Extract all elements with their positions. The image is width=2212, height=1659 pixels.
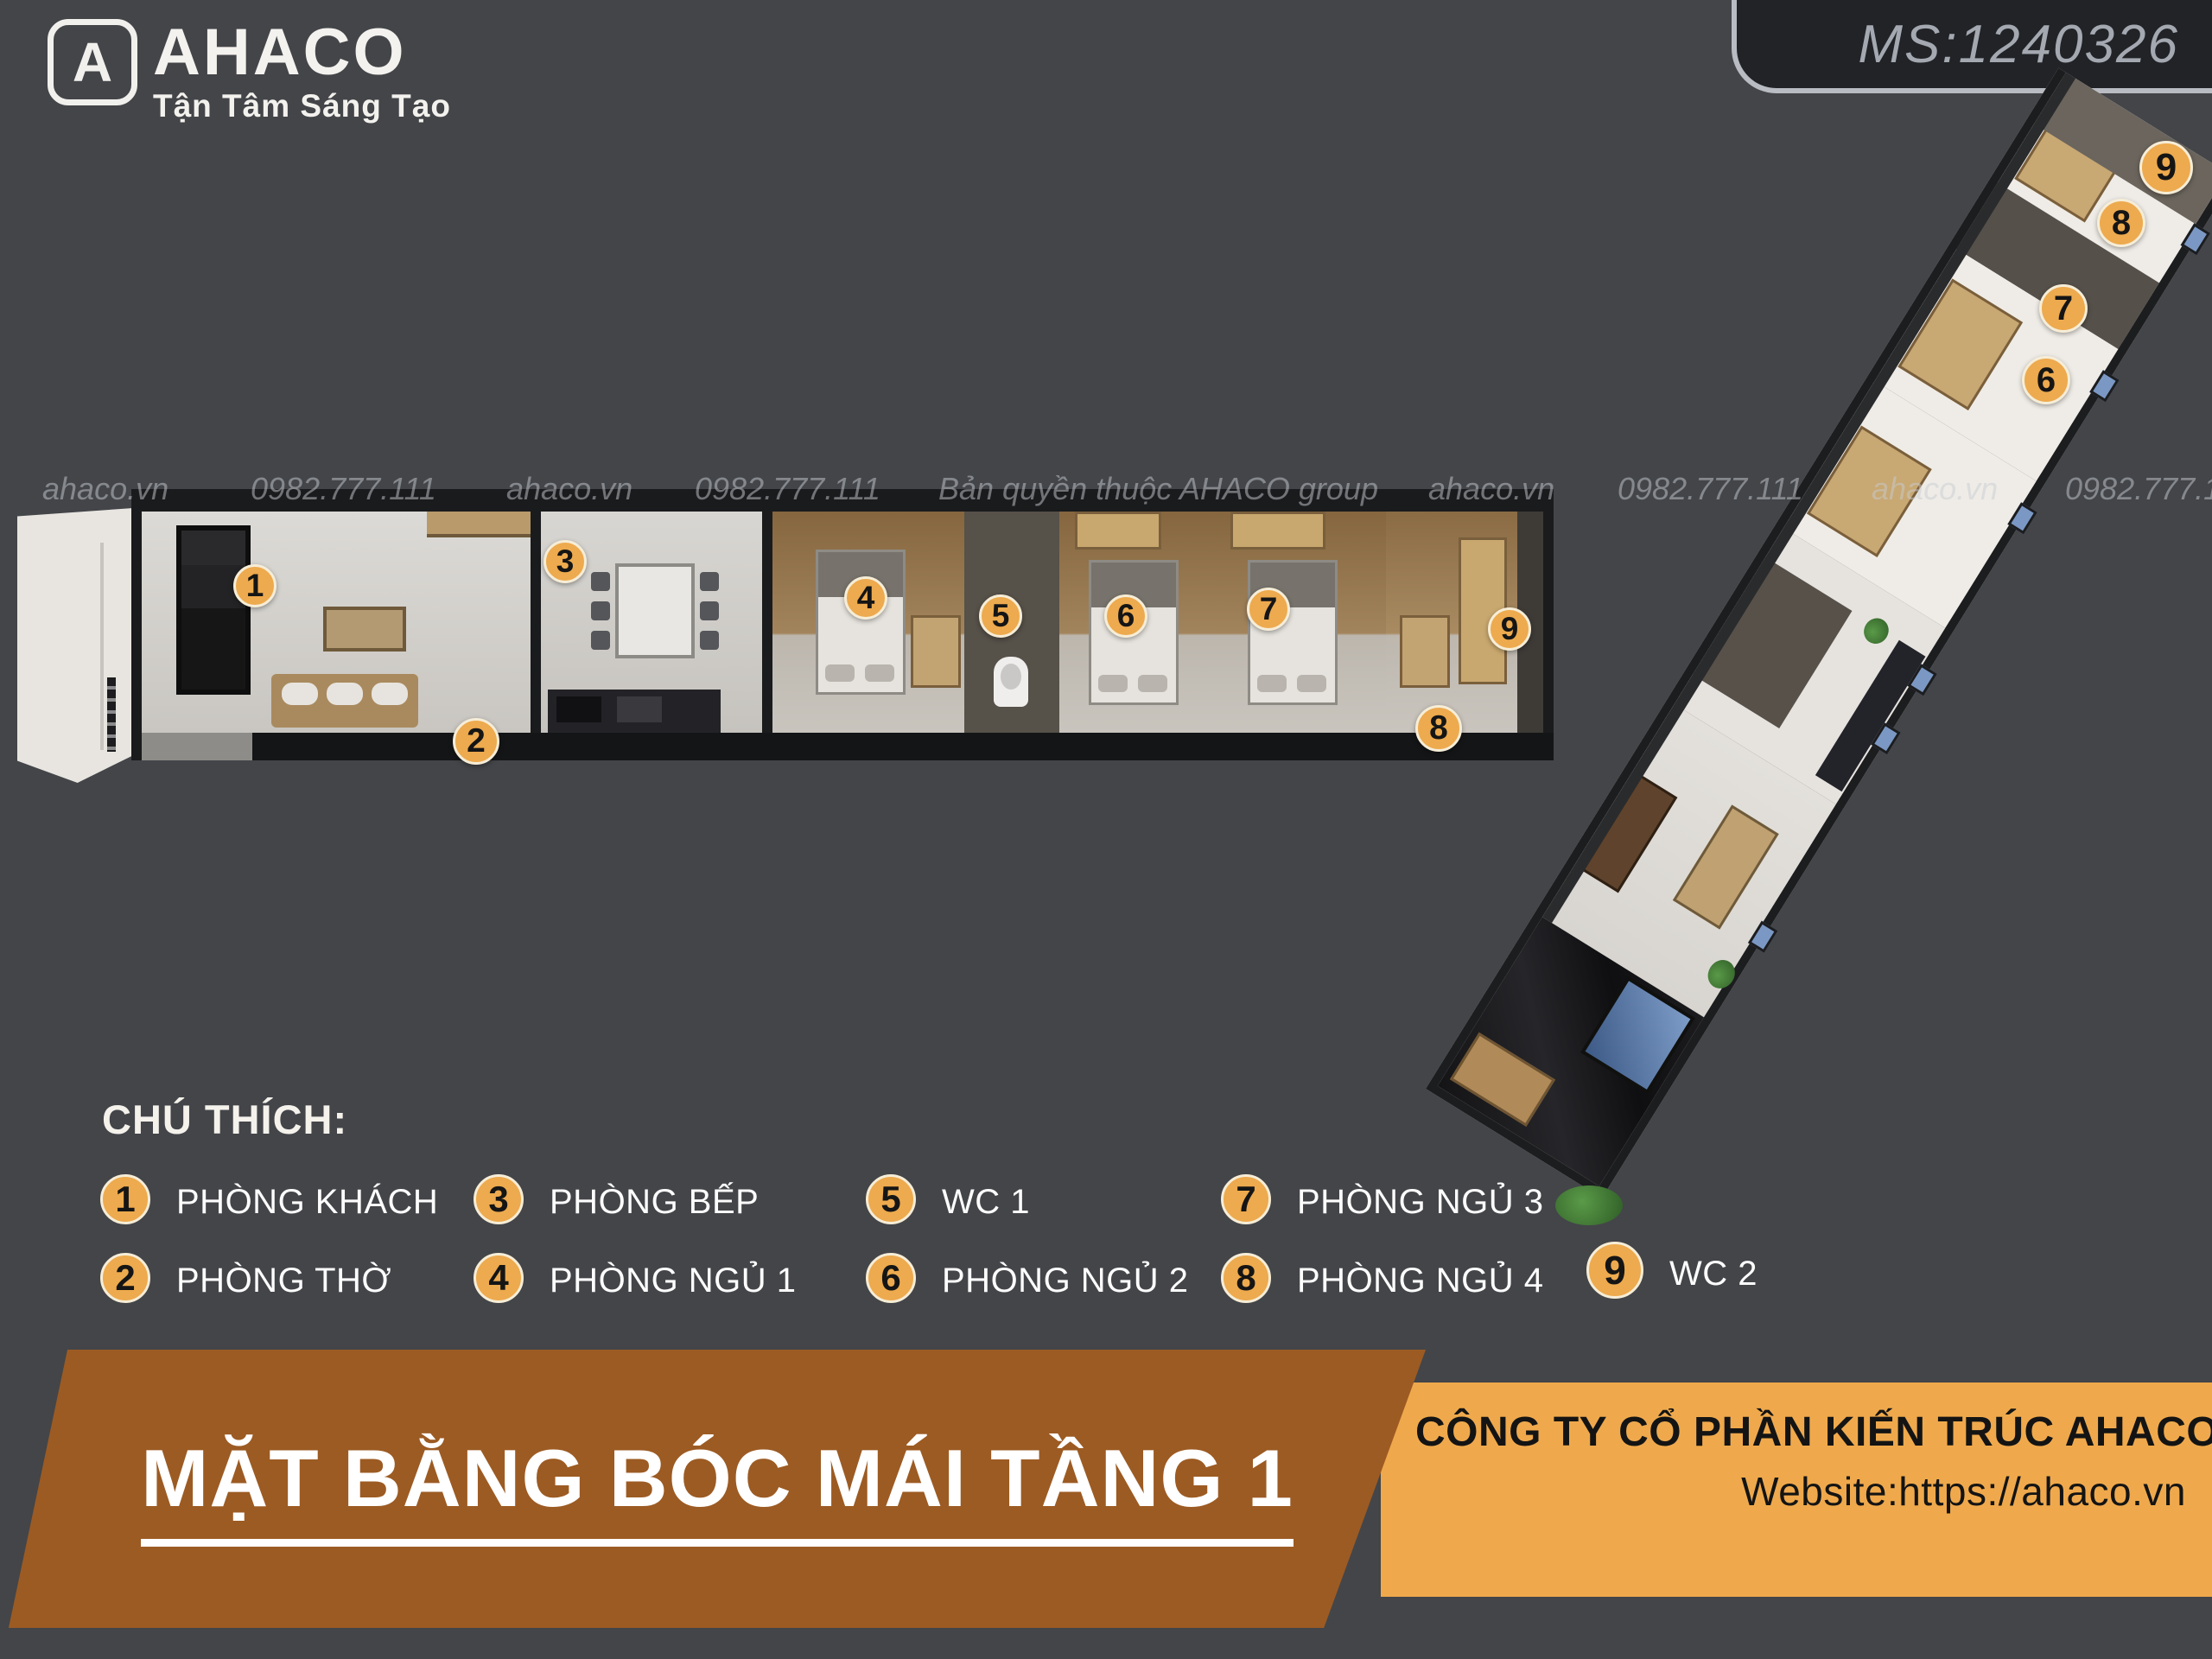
watermark-text: 0982.777.111 [251, 471, 436, 507]
plan-marker-2: 2 [453, 718, 499, 765]
plan-marker-8: 8 [1415, 705, 1462, 752]
interior-wall [531, 512, 541, 733]
company-website: Website:https://ahaco.vn [1415, 1468, 2186, 1515]
entry-door [1450, 1033, 1555, 1127]
iso-marker-9: 9 [2139, 141, 2193, 194]
plan-marker-4: 4 [844, 576, 887, 620]
desk [1400, 615, 1450, 688]
sofa [271, 674, 418, 728]
iso-marker-7: 7 [2039, 284, 2088, 333]
plan-marker-9: 9 [1488, 607, 1531, 651]
chair [591, 601, 610, 620]
legend-num-7: 7 [1221, 1174, 1271, 1224]
porch [17, 508, 133, 783]
plant-icon [1555, 1185, 1623, 1225]
chair [591, 572, 610, 591]
dining-table [615, 563, 695, 658]
bed [1248, 560, 1338, 705]
porch-seam [100, 543, 104, 750]
logo-a-icon: A [48, 19, 137, 105]
brand-logo: A AHACO Tận Tâm Sáng Tạo [48, 19, 451, 124]
plan-marker-3: 3 [543, 540, 587, 583]
legend-label-9: WC 2 [1669, 1255, 1758, 1294]
bed [1897, 278, 2023, 410]
floor-plan-horizontal [17, 489, 1554, 787]
project-code: MS:1240326 [1858, 14, 2179, 75]
chair [591, 631, 610, 650]
chair [700, 601, 719, 620]
bed [816, 550, 906, 695]
plan-marker-6: 6 [1104, 594, 1147, 638]
legend-num-9: 9 [1586, 1242, 1643, 1299]
sofa [1673, 804, 1779, 929]
legend-num-8: 8 [1221, 1253, 1271, 1303]
watermark-text: ahaco.vn [42, 471, 168, 507]
kitchen-counter [548, 690, 721, 733]
legend-label-1: PHÒNG KHÁCH [176, 1183, 438, 1222]
plan-building-body [131, 489, 1554, 760]
legend-num-1: 1 [100, 1174, 150, 1224]
brand-name: AHACO [153, 19, 451, 86]
watermark-text: Bản quyền thuộc AHACO group [938, 471, 1378, 507]
page-title: MẶT BẰNG BÓC MÁI TẦNG 1 [141, 1432, 1294, 1547]
front-wall [252, 733, 1554, 760]
plan-marker-7: 7 [1247, 588, 1290, 631]
legend-label-8: PHÒNG NGỦ 4 [1297, 1262, 1544, 1300]
legend-label-3: PHÒNG BẾP [550, 1183, 759, 1222]
watermark-text: 0982.777.111 [695, 471, 880, 507]
watermark-text: ahaco.vn [506, 471, 632, 507]
brand-tagline: Tận Tâm Sáng Tạo [153, 88, 451, 124]
legend-label-2: PHÒNG THỜ [176, 1262, 391, 1300]
legend-label-6: PHÒNG NGỦ 2 [942, 1262, 1189, 1300]
legend-num-5: 5 [866, 1174, 916, 1224]
footer-title-banner: MẶT BẰNG BÓC MÁI TẦNG 1 [0, 1350, 1434, 1628]
logo-letter: A [73, 30, 112, 94]
room-bedroom-1 [772, 512, 964, 733]
room-living [142, 512, 531, 733]
legend-label-4: PHÒNG NGỦ 1 [550, 1262, 797, 1300]
poster-canvas: A AHACO Tận Tâm Sáng Tạo MS:1240326 ahac… [0, 0, 2212, 1659]
kitchen-counter [1815, 640, 1926, 791]
desk [911, 615, 961, 688]
iso-marker-8: 8 [2097, 199, 2145, 247]
iso-marker-6: 6 [2022, 356, 2070, 404]
company-name: CÔNG TY CỔ PHẦN KIẾN TRÚC AHACO [1415, 1408, 2186, 1456]
wardrobe [1230, 512, 1325, 550]
legend-title: CHÚ THÍCH: [102, 1096, 347, 1143]
legend-num-3: 3 [474, 1174, 524, 1224]
wardrobe [1075, 512, 1161, 550]
watermark-text: ahaco.vn [1872, 471, 1998, 507]
watermark-text: ahaco.vn [1428, 471, 1554, 507]
legend-num-4: 4 [474, 1253, 524, 1303]
legend-num-6: 6 [866, 1253, 916, 1303]
chair [700, 572, 719, 591]
room-bedroom-3 [1213, 512, 1386, 733]
legend-num-2: 2 [100, 1253, 150, 1303]
porch-ladder-detail [107, 677, 116, 752]
interior-wall [762, 512, 772, 733]
plan-marker-1: 1 [233, 564, 276, 607]
plan-marker-5: 5 [979, 594, 1022, 638]
company-panel: CÔNG TY CỔ PHẦN KIẾN TRÚC AHACO Website:… [1381, 1382, 2212, 1597]
project-code-badge: MS:1240326 [1732, 0, 2212, 93]
toilet [994, 657, 1028, 707]
watermark-text: 0982.777.1 [2065, 471, 2212, 507]
legend-label-5: WC 1 [942, 1183, 1030, 1222]
front-patio [142, 733, 252, 760]
watermark-text: 0982.777.111 [1618, 471, 1803, 507]
window-frame [176, 525, 251, 695]
chair [700, 631, 719, 650]
legend-label-7: PHÒNG NGỦ 3 [1297, 1183, 1544, 1222]
coffee-table [323, 607, 406, 652]
